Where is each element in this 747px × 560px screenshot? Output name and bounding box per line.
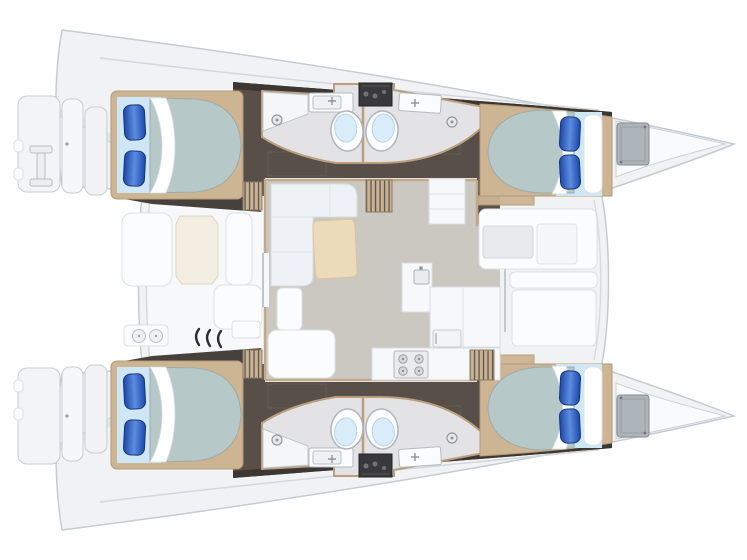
refrigerator-door (433, 330, 461, 347)
cockpit-locker (232, 321, 260, 338)
hatch-screw (644, 126, 647, 129)
lounge-seat-panel (537, 224, 577, 264)
floor-plan-canvas (0, 0, 747, 560)
bow-storage-hatch (617, 123, 649, 165)
appliance-knob (382, 90, 386, 94)
burner-dot (402, 358, 404, 360)
transom-step (62, 99, 83, 193)
salon-table (313, 219, 358, 279)
salon-aft-bench (268, 330, 335, 378)
sink-drain-dot (155, 335, 157, 337)
cockpit-bench (226, 213, 252, 285)
pillow (559, 116, 581, 151)
appliance-knob (373, 94, 378, 99)
shower-drain-dot (451, 121, 454, 124)
side-deck-trim (478, 196, 534, 205)
pillow (123, 150, 146, 186)
tall-cabinet (429, 179, 465, 224)
white-pillow (584, 115, 602, 193)
burner-dot (418, 370, 420, 372)
hatch-screw (620, 161, 623, 164)
burner-dot (402, 370, 404, 372)
cockpit-table (176, 216, 218, 284)
sun-pad (512, 290, 596, 346)
lounge-footwell (483, 226, 533, 258)
cockpit-bench (122, 213, 172, 286)
stove (394, 351, 428, 378)
deck-fitting-dot (65, 142, 68, 145)
galley-faucet (419, 266, 423, 270)
nav-seat (277, 288, 302, 330)
galley-sink (414, 270, 429, 284)
shower-drain-dot (276, 119, 279, 122)
sink-drain-dot (138, 335, 140, 337)
bathroom-sink (398, 93, 441, 114)
companionway-steps-aft (243, 182, 262, 210)
catamaran-floor-plan (0, 0, 747, 560)
salon (261, 179, 500, 380)
aft-cabin-bed (111, 91, 243, 199)
sink-basin (313, 96, 341, 109)
forward-cabin-bed (480, 104, 612, 196)
pillow (559, 154, 581, 189)
companionway-steps-starboard (470, 350, 494, 380)
platform-cleat (14, 168, 23, 180)
salon-aft-door (261, 253, 269, 307)
transom-step (85, 107, 107, 195)
burner-dot (418, 358, 420, 360)
platform-cleat (14, 140, 23, 152)
companionway-steps-port (366, 180, 392, 212)
pillow (123, 104, 146, 140)
lounge-back-band (510, 272, 597, 288)
appliance-knob (364, 92, 369, 97)
